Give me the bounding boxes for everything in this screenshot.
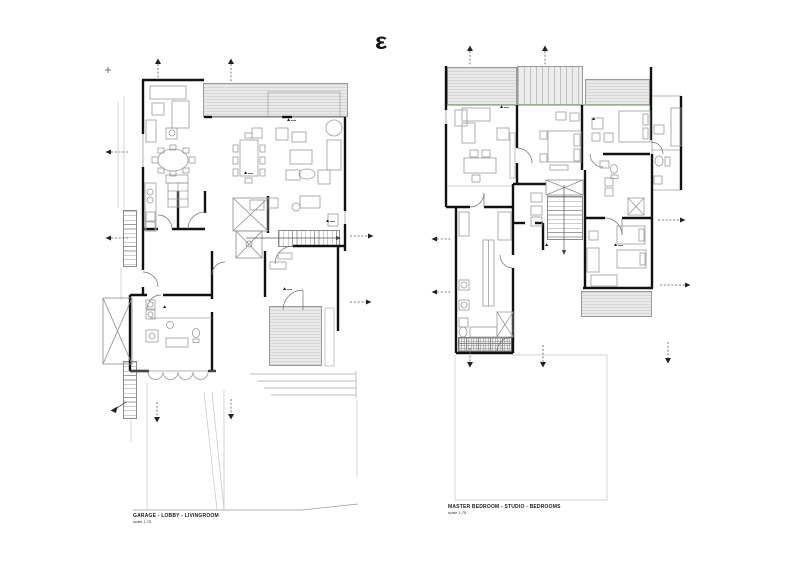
exterior-stair-lower-flight — [123, 361, 137, 419]
garage-ramp-hatch — [269, 306, 322, 366]
window-lines-upper — [446, 110, 652, 154]
awning-scallops — [148, 372, 208, 380]
roof-terrace-west — [447, 67, 517, 105]
main-stair-upper — [547, 196, 583, 240]
studio-logo-icon: ε — [375, 28, 387, 55]
doors-ground — [143, 212, 303, 310]
plan-scale-upper: scale 1:75 — [448, 510, 561, 515]
roof-terrace-east — [585, 79, 650, 105]
roof-terrace-center — [517, 66, 583, 105]
main-stair-ground — [278, 230, 340, 247]
caption-upper-floor: MASTER BEDROOM - STUDIO - BEDROOMS scale… — [448, 504, 561, 515]
site-lines-ground — [118, 92, 358, 510]
stair-direction-arrow-upper — [562, 250, 566, 255]
drawing-sheet: ε GARAGE - LOBBY - LIVINGROOM scale 1:75… — [0, 0, 800, 565]
exterior-stair-upper-flight — [123, 210, 137, 267]
plan-scale-ground: scale 1:75 — [133, 519, 219, 524]
bedroom-balcony-hatch — [581, 291, 652, 317]
floor-plans-drawing — [0, 0, 800, 565]
upper-floor-plan — [432, 46, 691, 501]
bath-tile-hatch — [458, 337, 512, 352]
caption-ground-floor: GARAGE - LOBBY - LIVINGROOM scale 1:75 — [133, 513, 219, 524]
terrace-hatch-ground — [203, 83, 348, 117]
level-markers-ground — [163, 118, 335, 308]
ground-floor-plan — [103, 59, 374, 511]
